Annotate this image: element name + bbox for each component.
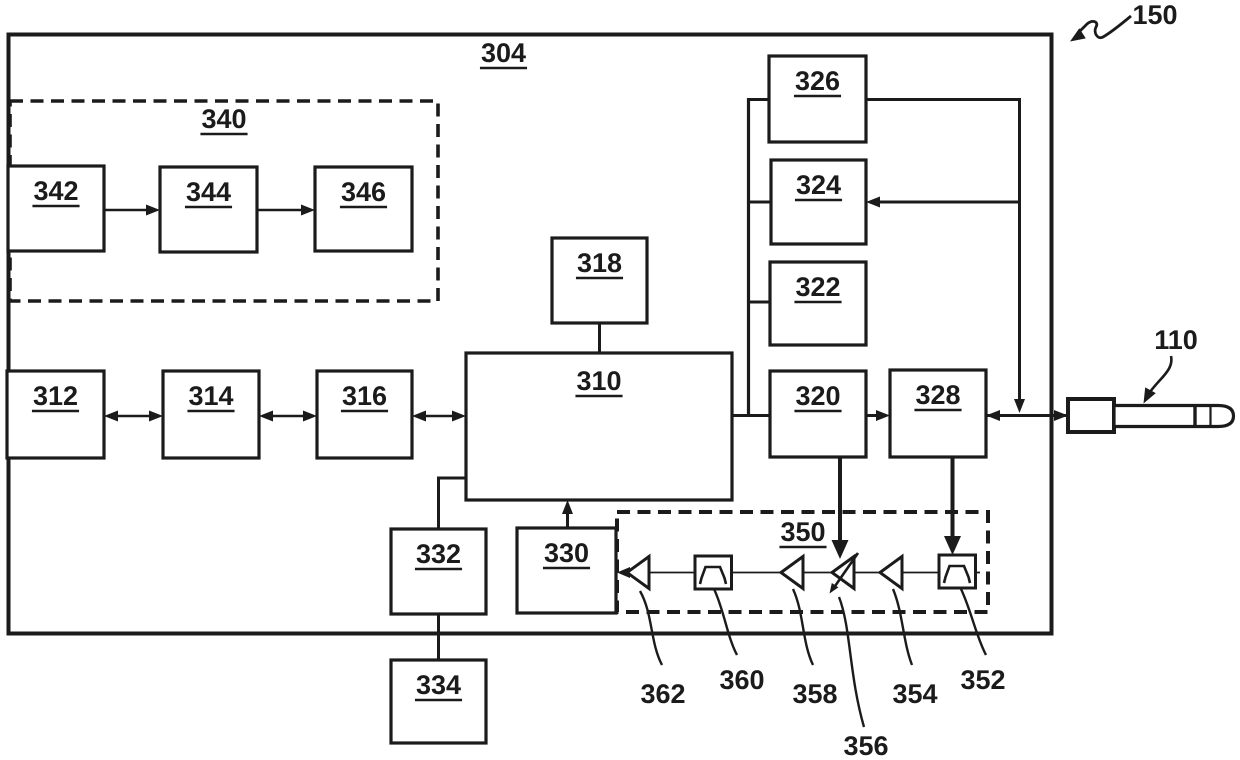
svg-text:320: 320 <box>795 381 840 411</box>
svg-text:330: 330 <box>544 538 589 568</box>
svg-text:110: 110 <box>1154 325 1198 355</box>
svg-text:356: 356 <box>843 731 888 760</box>
svg-text:316: 316 <box>342 381 387 411</box>
svg-text:312: 312 <box>33 381 78 411</box>
svg-text:334: 334 <box>416 670 461 700</box>
svg-text:322: 322 <box>795 272 840 302</box>
svg-text:352: 352 <box>960 665 1005 695</box>
svg-text:342: 342 <box>33 176 78 206</box>
svg-text:318: 318 <box>577 248 622 278</box>
svg-text:346: 346 <box>341 177 386 207</box>
svg-text:326: 326 <box>795 66 840 96</box>
svg-text:350: 350 <box>780 517 825 547</box>
svg-text:358: 358 <box>792 679 837 709</box>
svg-text:344: 344 <box>186 177 231 207</box>
svg-text:150: 150 <box>1132 0 1177 30</box>
svg-text:360: 360 <box>719 665 764 695</box>
svg-text:354: 354 <box>892 679 937 709</box>
svg-text:314: 314 <box>188 381 233 411</box>
svg-text:362: 362 <box>640 679 685 709</box>
svg-text:310: 310 <box>576 366 621 396</box>
svg-text:340: 340 <box>201 104 246 134</box>
svg-text:304: 304 <box>481 38 526 68</box>
svg-text:332: 332 <box>416 539 461 569</box>
svg-text:324: 324 <box>796 170 841 200</box>
svg-text:328: 328 <box>915 380 960 410</box>
